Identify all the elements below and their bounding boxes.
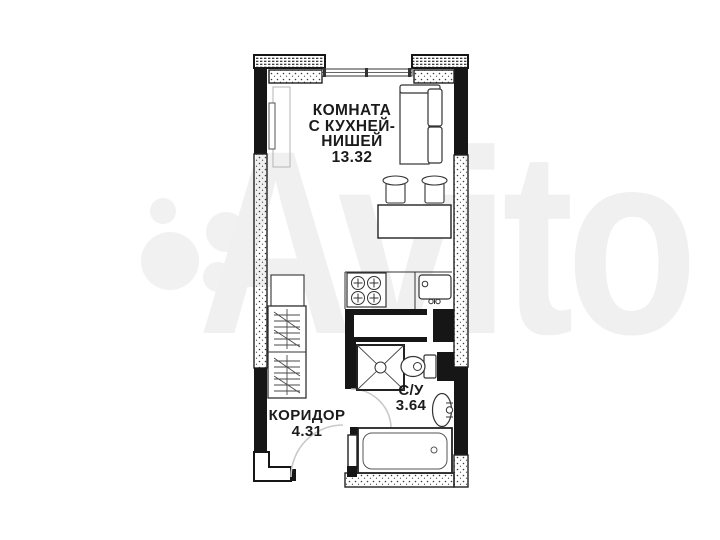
corridor-area: 4.31 [247, 424, 367, 440]
corridor-name: КОРИДОР [247, 408, 367, 424]
living-room-name-line: С КУХНЕЙ- [242, 119, 462, 135]
floor-plan-screenshot: Avito [0, 0, 720, 540]
corridor-label: КОРИДОР 4.31 [247, 408, 367, 440]
living-room-name-line: НИШЕЙ [242, 134, 462, 150]
living-room-area: 13.32 [242, 150, 462, 166]
bathroom-label: С/У 3.64 [361, 383, 461, 413]
living-room-name-line: КОМНАТА [242, 103, 462, 119]
room-labels: КОМНАТА С КУХНЕЙ- НИШЕЙ 13.32 КОРИДОР 4.… [0, 0, 720, 540]
bathroom-area: 3.64 [361, 398, 461, 413]
bathroom-name: С/У [361, 383, 461, 398]
living-room-label: КОМНАТА С КУХНЕЙ- НИШЕЙ 13.32 [242, 103, 462, 165]
